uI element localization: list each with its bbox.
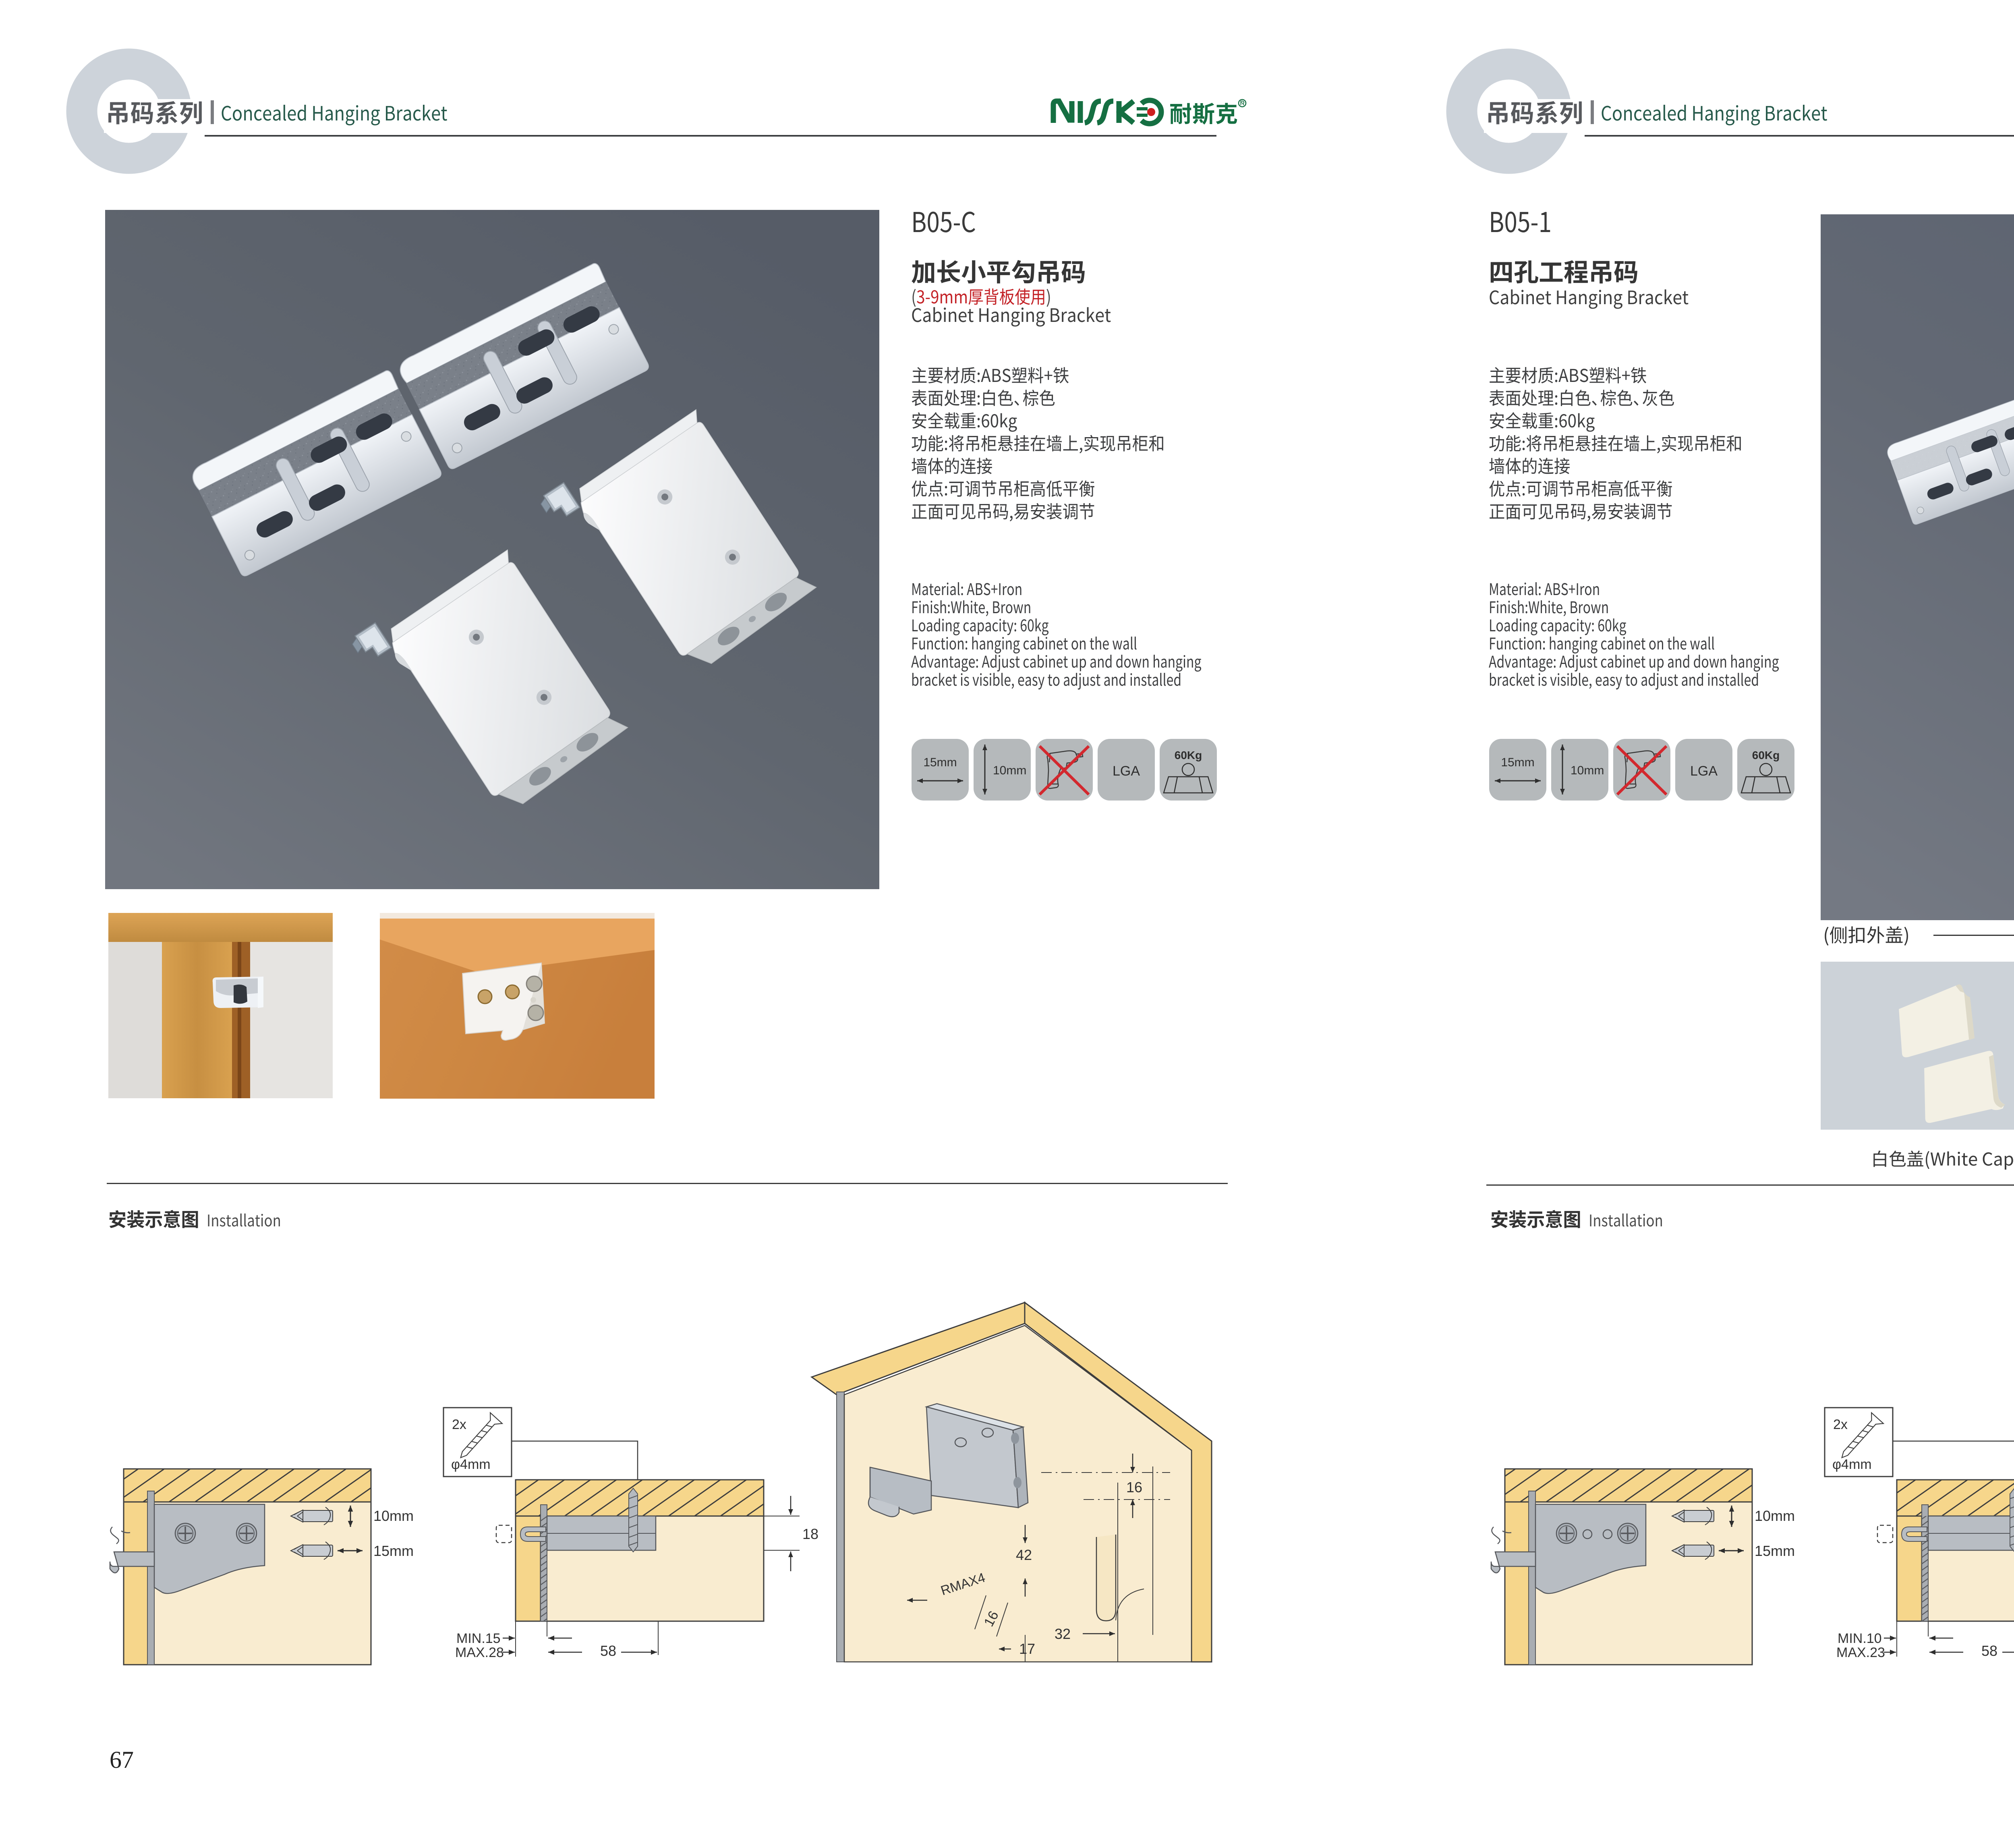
svg-text:LGA: LGA	[1690, 763, 1718, 779]
svg-text:2x: 2x	[452, 1417, 466, 1432]
svg-text:60Kg: 60Kg	[1175, 749, 1202, 761]
svg-text:17: 17	[1019, 1641, 1035, 1657]
svg-text:15mm: 15mm	[373, 1543, 414, 1559]
svg-text:10mm: 10mm	[373, 1508, 414, 1524]
svg-text:58: 58	[1981, 1643, 1997, 1659]
svg-text:15mm: 15mm	[1501, 756, 1534, 769]
svg-text:16: 16	[1126, 1479, 1142, 1495]
svg-text:10mm: 10mm	[1571, 764, 1604, 777]
svg-text:10mm: 10mm	[993, 764, 1026, 777]
svg-text:φ4mm: φ4mm	[451, 1457, 491, 1472]
svg-text:MIN.15: MIN.15	[456, 1631, 501, 1646]
svg-text:15mm: 15mm	[1755, 1543, 1795, 1559]
svg-text:10mm: 10mm	[1755, 1508, 1795, 1524]
svg-text:15mm: 15mm	[923, 756, 957, 769]
svg-text:MAX.28: MAX.28	[455, 1645, 504, 1660]
svg-text:MAX.23: MAX.23	[1836, 1645, 1885, 1660]
svg-text:φ4mm: φ4mm	[1832, 1457, 1872, 1472]
svg-text:32: 32	[1055, 1626, 1071, 1642]
svg-text:2x: 2x	[1833, 1417, 1848, 1432]
svg-text:MIN.10: MIN.10	[1838, 1631, 1882, 1646]
svg-text:60Kg: 60Kg	[1752, 749, 1780, 761]
svg-text:58: 58	[600, 1643, 616, 1659]
svg-text:67: 67	[110, 1746, 134, 1773]
svg-text:LGA: LGA	[1113, 763, 1140, 779]
svg-text:18: 18	[802, 1526, 818, 1542]
svg-text:42: 42	[1016, 1547, 1032, 1563]
